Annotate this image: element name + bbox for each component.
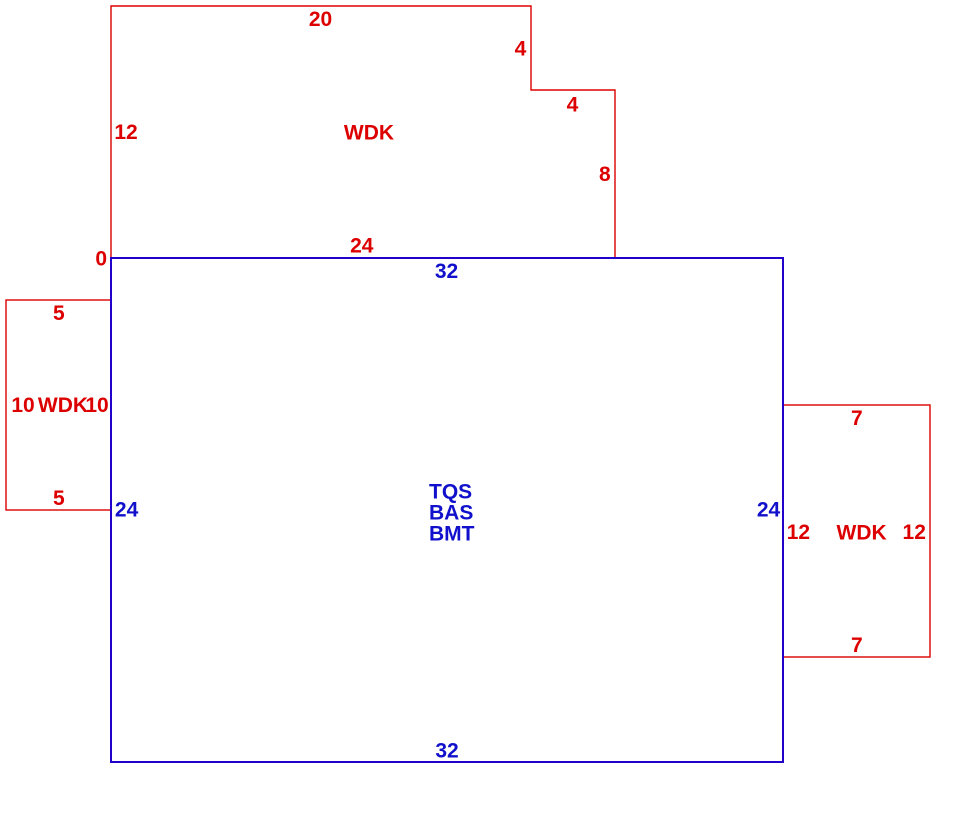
svg-text:10: 10 [85, 394, 108, 417]
svg-text:8: 8 [599, 163, 611, 186]
svg-text:4: 4 [515, 37, 527, 60]
svg-text:12: 12 [114, 121, 137, 144]
svg-text:12: 12 [903, 521, 926, 544]
svg-text:32: 32 [435, 740, 458, 763]
svg-text:24: 24 [350, 235, 374, 258]
svg-text:24: 24 [757, 499, 781, 522]
svg-text:20: 20 [309, 8, 332, 31]
svg-text:5: 5 [53, 302, 65, 325]
svg-text:12: 12 [787, 521, 810, 544]
svg-text:32: 32 [435, 260, 458, 283]
svg-text:BMT: BMT [429, 523, 475, 546]
svg-text:WDK: WDK [38, 394, 88, 417]
svg-text:0: 0 [95, 247, 107, 270]
svg-text:WDK: WDK [344, 122, 394, 145]
svg-text:7: 7 [851, 407, 863, 430]
svg-text:TQS: TQS [429, 481, 472, 504]
svg-text:24: 24 [115, 498, 139, 521]
svg-text:10: 10 [11, 394, 34, 417]
svg-text:WDK: WDK [837, 522, 887, 545]
svg-text:BAS: BAS [429, 502, 473, 525]
svg-text:7: 7 [851, 634, 863, 657]
svg-text:5: 5 [53, 487, 65, 510]
svg-text:4: 4 [567, 93, 579, 116]
